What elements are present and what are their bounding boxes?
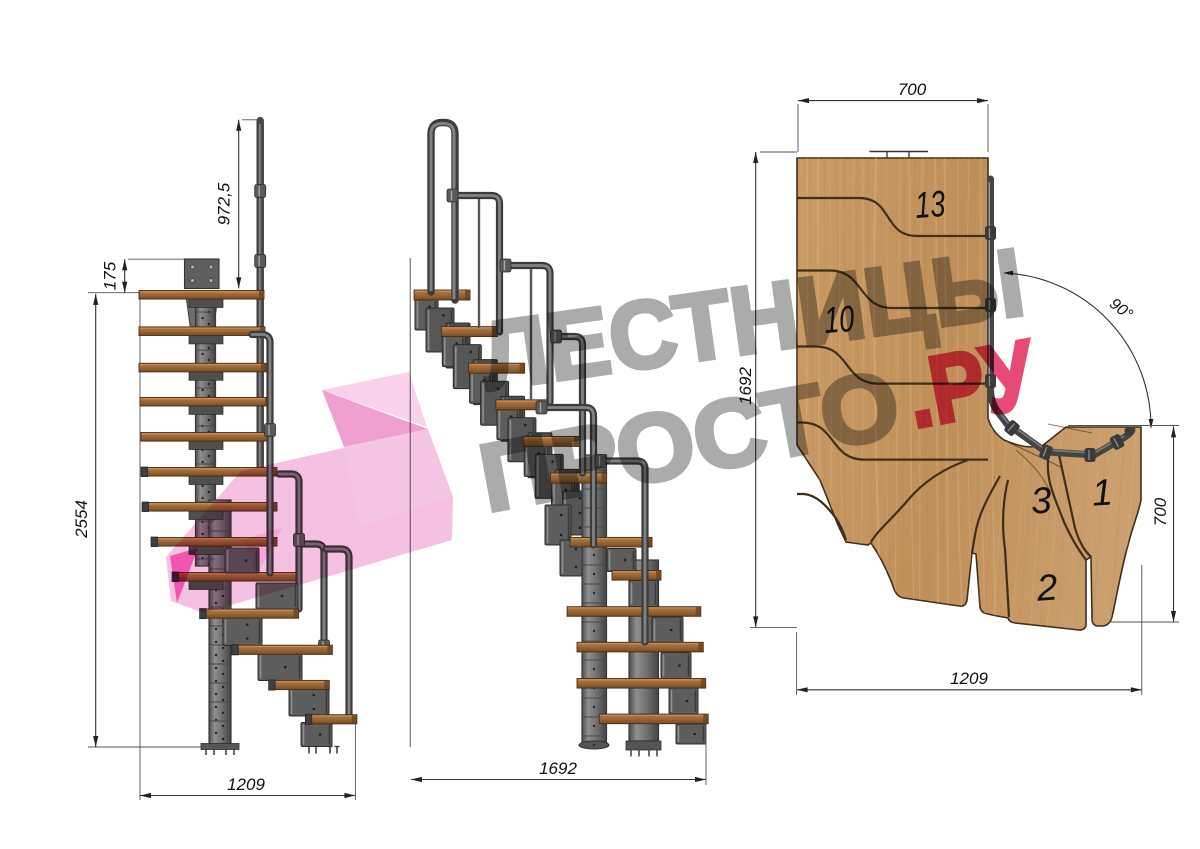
svg-text:1: 1	[1090, 471, 1113, 513]
svg-text:700: 700	[1151, 497, 1170, 526]
svg-text:1209: 1209	[950, 669, 988, 688]
svg-text:2554: 2554	[72, 500, 91, 539]
svg-text:13: 13	[914, 183, 947, 226]
svg-text:3: 3	[1029, 479, 1053, 521]
svg-text:972,5: 972,5	[215, 182, 234, 225]
svg-text:1692: 1692	[539, 759, 577, 778]
svg-text:700: 700	[898, 80, 927, 99]
svg-text:175: 175	[101, 261, 120, 290]
svg-text:1209: 1209	[227, 775, 265, 794]
svg-text:2: 2	[1034, 566, 1059, 608]
